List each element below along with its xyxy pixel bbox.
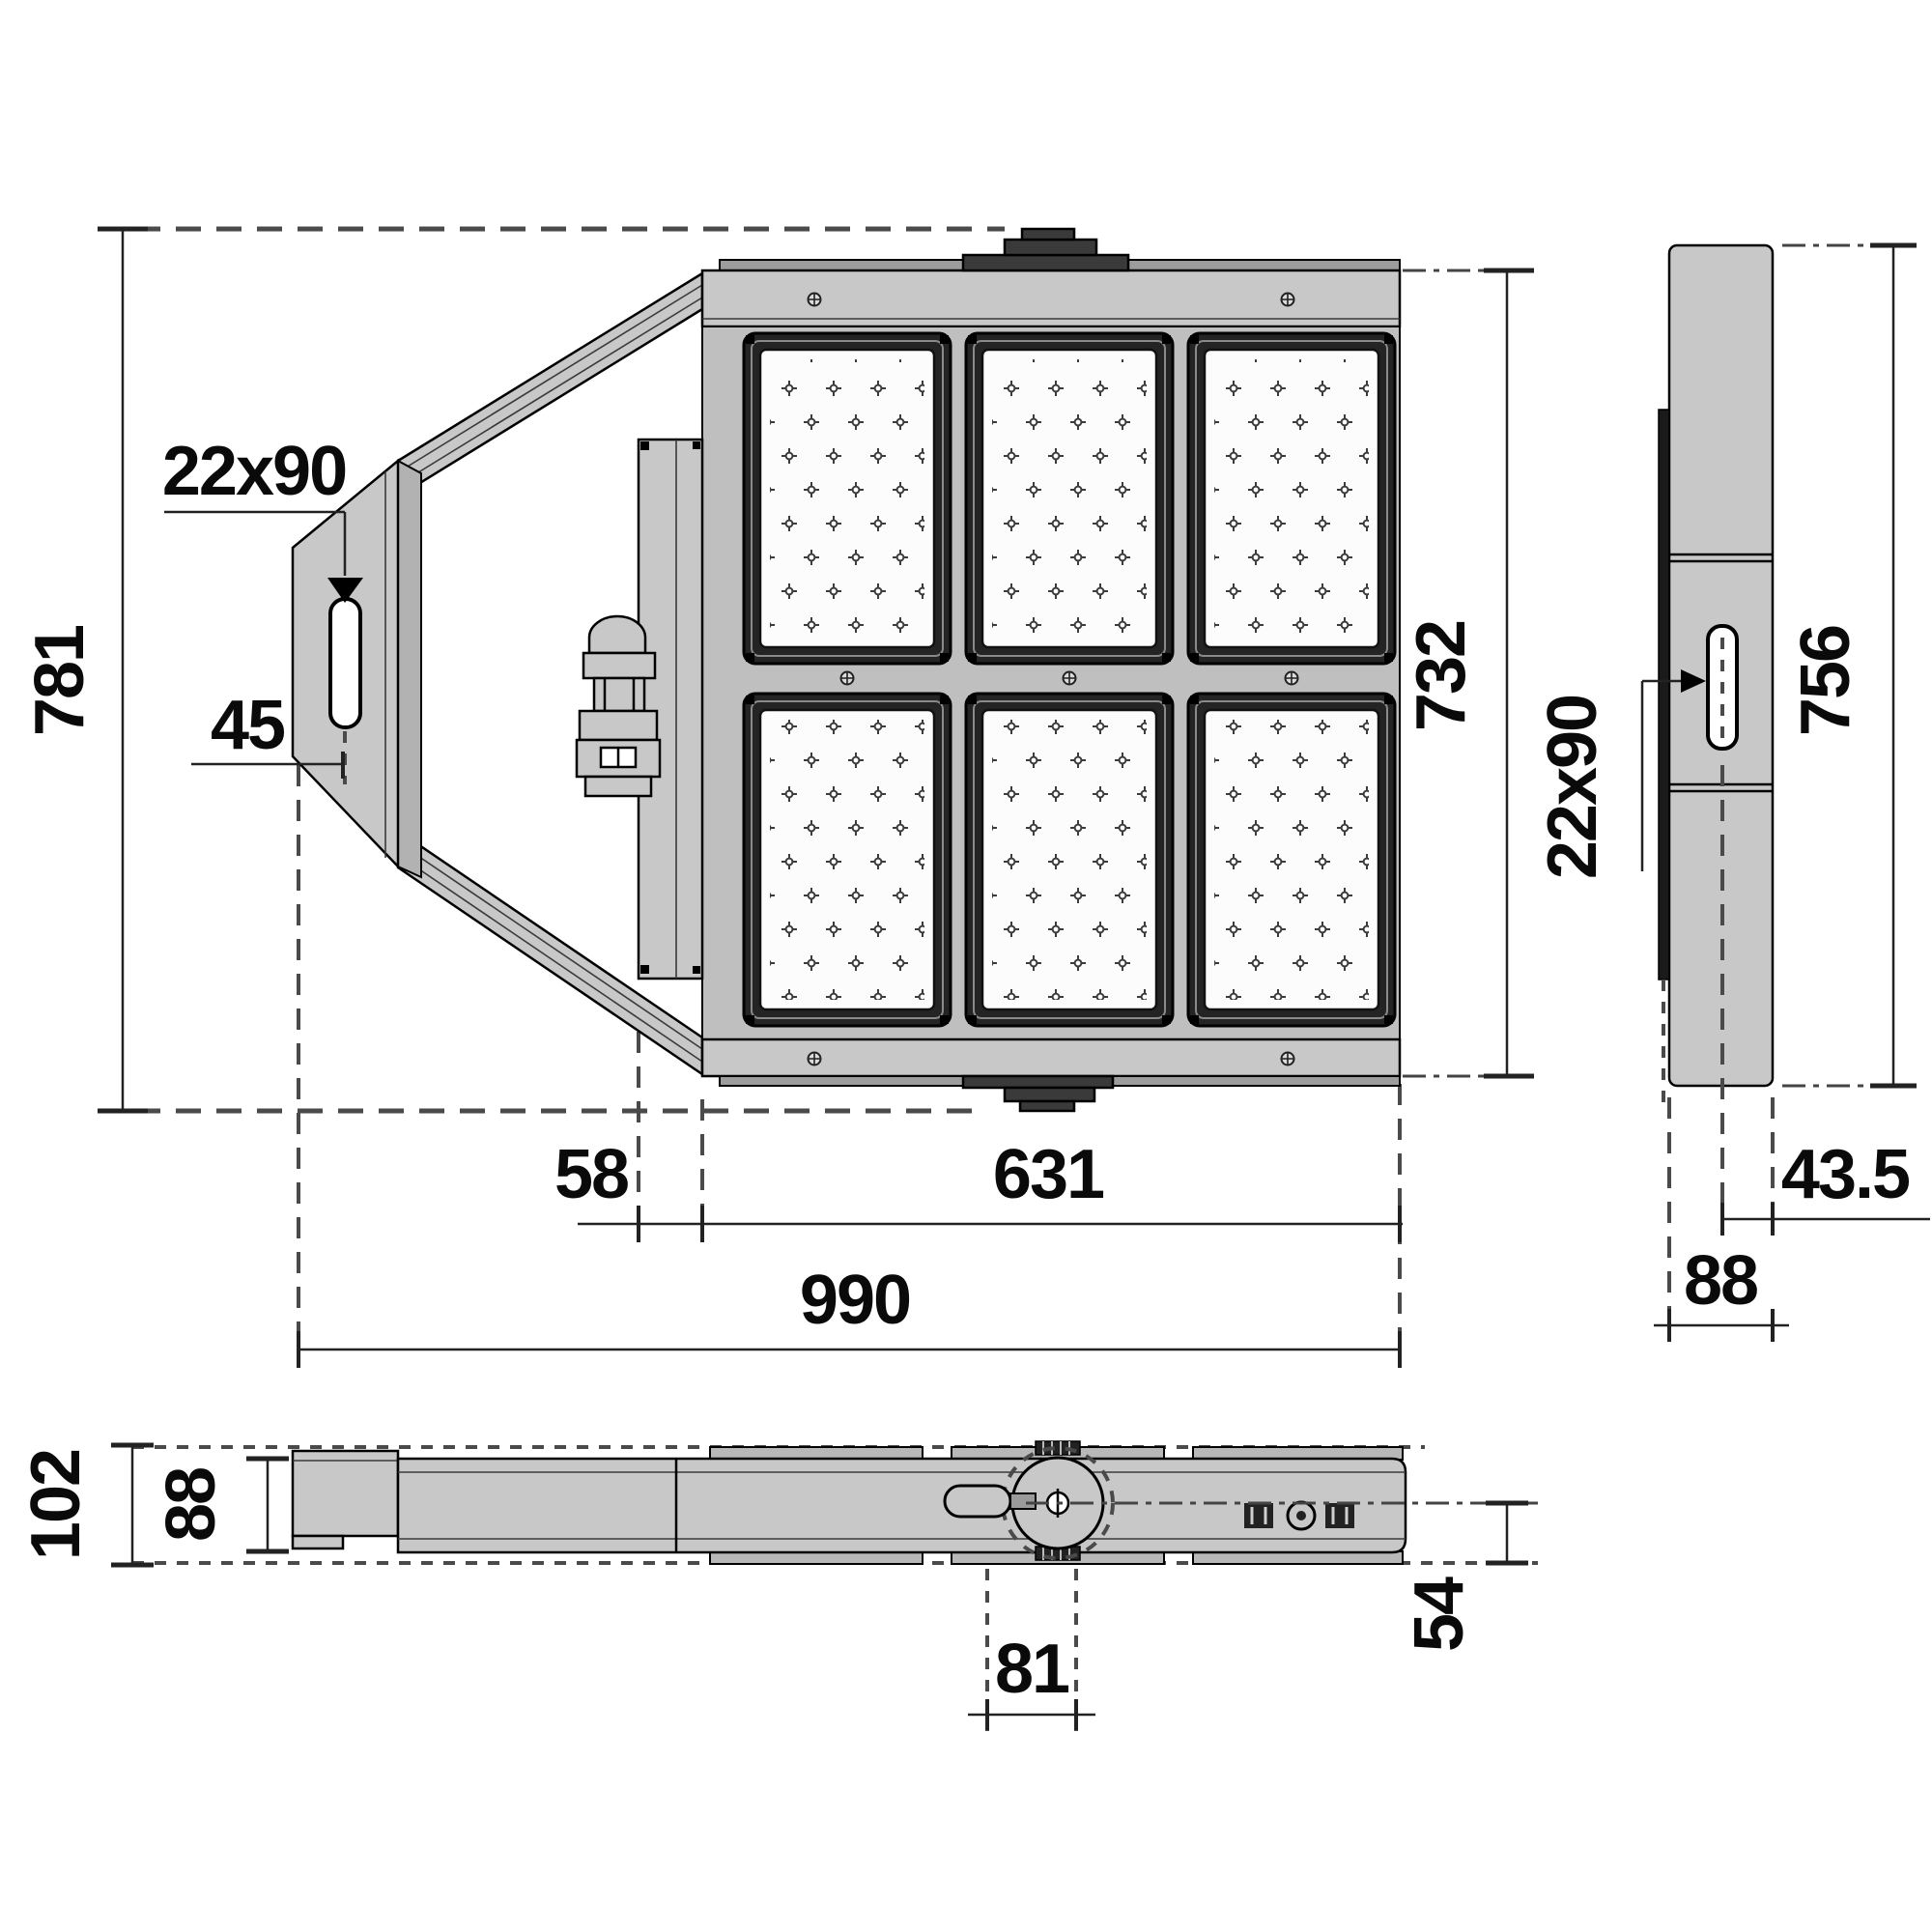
dim-label-81: 81 <box>995 1631 1069 1708</box>
screw-icon <box>1282 1053 1294 1065</box>
dim-side-center-face: 43.5 <box>1722 1136 1930 1236</box>
side-view: 22x90 756 43.5 88 <box>1534 245 1930 1342</box>
dim-label-54: 54 <box>1401 1577 1478 1652</box>
connector-fittings <box>1244 1502 1354 1529</box>
dim-label-45: 45 <box>211 687 285 764</box>
dim-front-overall-width: 990 <box>298 1262 1400 1368</box>
dim-label-990: 990 <box>800 1262 910 1339</box>
dim-label-102: 102 <box>17 1450 95 1560</box>
dim-bottom-body-depth: 88 <box>153 1459 289 1551</box>
dim-label-side-22x90: 22x90 <box>1534 696 1611 879</box>
luminaire-body <box>577 229 1400 1111</box>
dim-bottom-axis-edge: 54 <box>1401 1503 1528 1652</box>
bracket-plate-flange <box>398 461 421 877</box>
dim-side-height: 756 <box>1787 245 1917 1086</box>
technical-drawing-page: 781 732 58 631 990 <box>0 0 1932 1932</box>
screw-icon <box>1282 294 1294 306</box>
dim-side-width: 88 <box>1654 1242 1789 1342</box>
top-mounting-tab <box>963 229 1128 270</box>
screw-icon <box>1286 672 1298 685</box>
dim-front-body-height: 732 <box>1403 270 1534 1076</box>
dim-bottom-overall-depth: 102 <box>17 1445 154 1565</box>
side-mount-strip <box>639 440 702 979</box>
floodlight-dimension-drawing: 781 732 58 631 990 <box>0 0 1932 1932</box>
dim-label-side-88: 88 <box>1684 1242 1757 1320</box>
dim-label-756: 756 <box>1787 626 1864 736</box>
screw-icon <box>841 672 854 685</box>
dim-label-631: 631 <box>993 1136 1104 1213</box>
bottom-bracket-plate <box>293 1451 398 1548</box>
dim-label-43-5: 43.5 <box>1781 1136 1910 1213</box>
dim-front-58-631: 58 631 <box>554 1136 1403 1242</box>
locking-lever <box>945 1486 1010 1517</box>
bottom-mounting-tab <box>963 1076 1113 1111</box>
screw-icon <box>1064 672 1076 685</box>
dim-label-58: 58 <box>554 1136 628 1213</box>
dim-label-front-22x90: 22x90 <box>162 433 346 510</box>
bracket-slot <box>330 599 360 727</box>
dim-label-732: 732 <box>1403 621 1480 731</box>
bottom-view: 102 88 81 54 <box>17 1441 1538 1731</box>
screw-icon <box>809 294 821 306</box>
dim-label-bottom-88: 88 <box>153 1468 230 1542</box>
side-bracket-edge <box>1659 410 1669 980</box>
dim-front-overall-height: 781 <box>21 229 148 1111</box>
front-view: 781 732 58 631 990 <box>21 229 1534 1368</box>
screw-icon <box>809 1053 821 1065</box>
dim-label-781: 781 <box>21 625 99 736</box>
bottom-rail <box>702 1039 1400 1076</box>
lever-stem <box>1010 1493 1036 1509</box>
